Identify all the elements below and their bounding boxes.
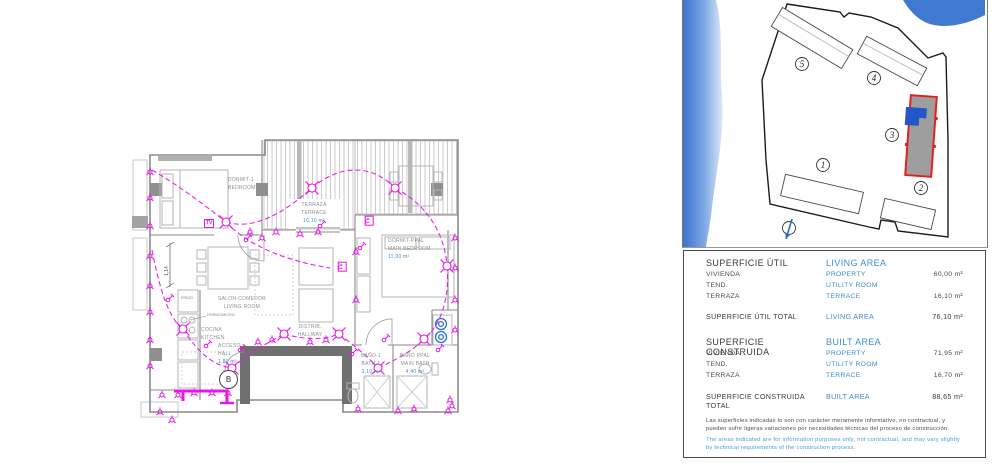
dimension-text: 1,14 [164,266,170,276]
table-section-header: SUPERFICIE CONSTRUIDA BUILT AREA [706,337,963,350]
table-row: TEND. UTILITY ROOM [706,282,963,293]
site-plan-panel [682,0,988,248]
table-row: VIVIENDA PROPERTY 60,00 m² [706,271,963,282]
areas-table: SUPERFICIE ÚTIL LIVING AREA VIVIENDA PRO… [683,250,986,458]
room-label-terrace: TERRAZATERRACE16,10 m² [301,202,327,225]
room-label-bath1: BAÑO-1BATH-13,10 m² [361,353,381,376]
table-row: TERRAZA TERRACE 16,10 m² [706,293,963,304]
brochure-page: 5 4 3 1 2 DORMIT-1BEDROOM-1 TERRAZATERRA… [0,0,1002,473]
table-total-row: SUPERFICIE CONSTRUIDA TOTAL BUILT AREA 8… [706,392,963,404]
table-row: VIVIENDA PROPERTY 71,95 m² [706,350,963,361]
room-label-bedroom1: DORMIT-1BEDROOM-1 [228,177,261,193]
disclaimer-es: Las superficies indicadas lo son con car… [706,418,963,433]
tv-outlet-label: TV [338,261,347,271]
fridge-label: FRIGO [181,296,193,300]
room-label-main-bath: BAÑO PPALMAIN BATH4,40 m² [400,353,430,376]
table-row: TEND. UTILITY ROOM [706,361,963,372]
disclaimer-en: The areas indicated are for information … [706,437,963,452]
entrance-marker: B [219,370,238,389]
dimension-line [166,242,174,288]
table-section-header: SUPERFICIE ÚTIL LIVING AREA [706,258,963,271]
room-label-living-room: SALON-COMEDORLIVING ROOM [218,296,266,312]
tv-outlet-label: TV [365,215,374,225]
table-row: TERRAZA TERRACE 16,70 m² [706,372,963,383]
tv-outlet-label: TV [204,219,214,228]
room-label-kitchen: COCINAKITCHEN [201,327,225,343]
neighbour-structures [132,160,178,417]
room-label-hall: ACCESOHALL1,80 m² [218,343,241,366]
oven-label: HORNO/MICRO. [207,313,236,317]
stair-core [240,346,352,404]
room-label-main-bedroom: DORMIT-PPALMAIN BEDROOM11,00 m² [388,238,431,261]
room-label-hallway: DISTRIB.HALLWAY [298,324,323,340]
table-total-row: SUPERFICIE ÚTIL TOTAL LIVING AREA 76,10 … [706,312,963,324]
